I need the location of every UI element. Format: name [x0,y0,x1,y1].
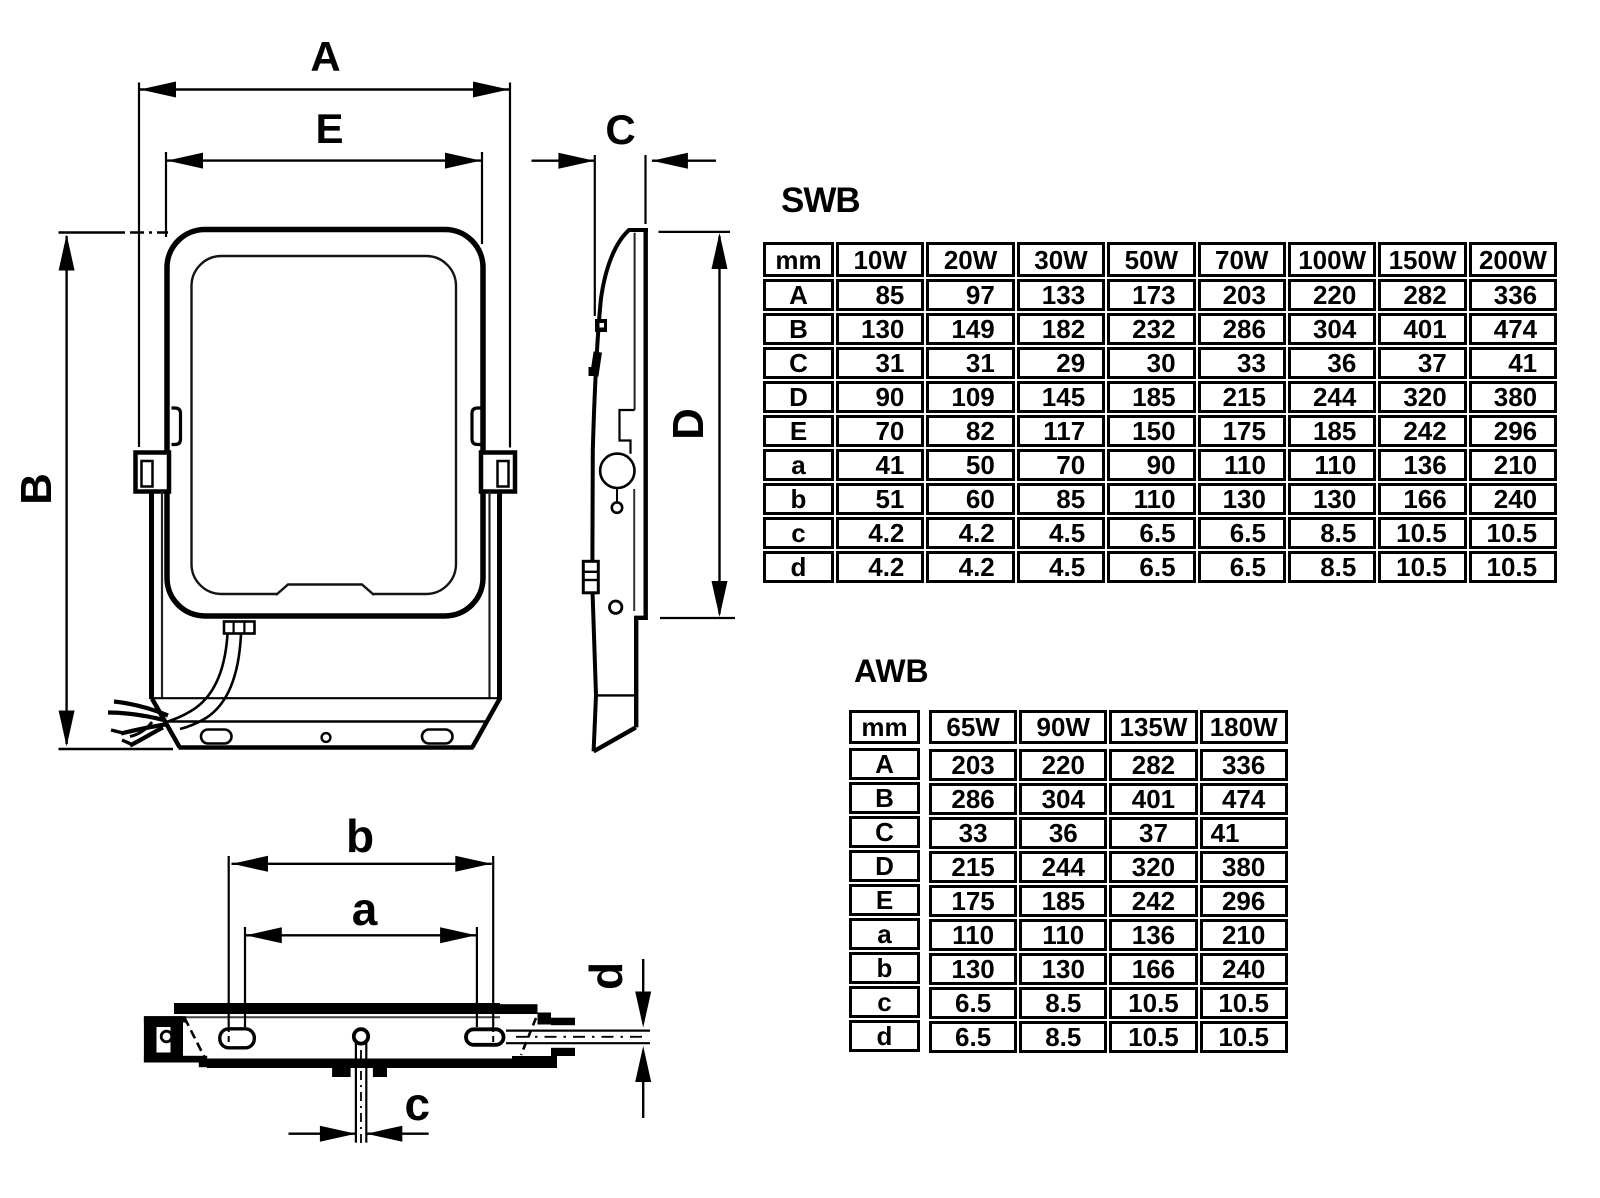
svg-text:b: b [346,810,374,862]
svg-text:A: A [310,33,340,80]
svg-text:D: D [664,408,713,440]
svg-text:c: c [405,1078,431,1130]
svg-text:a: a [352,883,378,935]
svg-text:C: C [605,106,635,153]
svg-text:E: E [315,105,343,152]
svg-text:B: B [12,473,61,505]
svg-text:d: d [580,962,632,990]
